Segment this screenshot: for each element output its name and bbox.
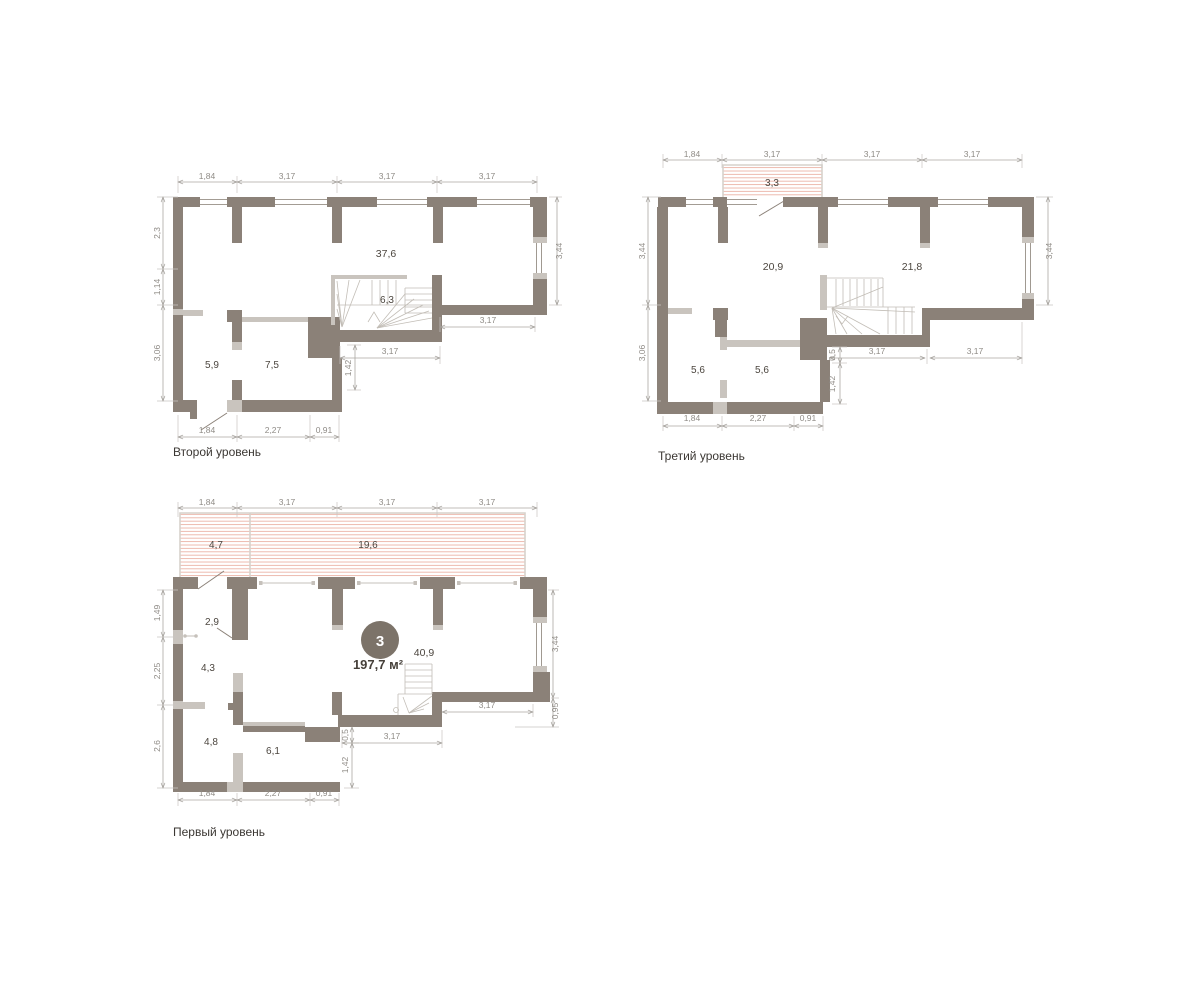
dim-label: 2,25 [152, 662, 162, 679]
dim-label: 1,84 [199, 171, 216, 181]
terrace-area: 4,7 [209, 540, 223, 551]
dim-label: 1,42 [340, 756, 350, 773]
dim-label: 2,27 [750, 413, 767, 423]
dim-label: 3,17 [279, 497, 296, 507]
dimension-lines [642, 154, 1053, 431]
window-tie [259, 581, 517, 585]
dim-label: 3,17 [964, 149, 981, 159]
walls-layer [173, 197, 547, 419]
dim-label: 3,17 [764, 149, 781, 159]
dim-label: 2,27 [265, 788, 282, 798]
room-area: 5,9 [205, 360, 219, 371]
dimension-labels: 1,84 3,17 3,17 3,17 3,44 3,06 3,44 1,84 … [637, 149, 1054, 423]
floor-plans-canvas: 1,84 3,17 3,17 3,17 2,3 1,14 3,06 3,44 1… [0, 0, 1200, 988]
dim-label: 0,5 [827, 349, 837, 361]
room-area: 21,8 [902, 261, 923, 273]
plan-title: Первый уровень [173, 825, 265, 839]
dim-label: 3,17 [479, 171, 496, 181]
room-area: 40,9 [414, 647, 435, 659]
dim-label: 3,17 [967, 346, 984, 356]
room-area-labels: 37,6 6,3 5,9 7,5 [205, 248, 396, 371]
dim-label: 0,91 [316, 425, 333, 435]
terrace-area: 19,6 [358, 540, 378, 551]
plan-title: Второй уровень [173, 445, 261, 459]
hall-door-pointer [217, 628, 232, 638]
dim-label: 1,84 [684, 413, 701, 423]
room-area: 5,6 [755, 365, 769, 376]
dim-label: 3,06 [637, 344, 647, 361]
dim-label: 1,84 [684, 149, 701, 159]
dim-label: 3,17 [382, 346, 399, 356]
dim-label: 1,42 [827, 375, 837, 392]
dim-label: 1,84 [199, 425, 216, 435]
terrace-hatch [180, 513, 525, 577]
dim-label: 3,17 [479, 497, 496, 507]
dim-label: 0,5 [340, 729, 350, 741]
dim-label: 3,44 [550, 635, 560, 652]
dim-label: 0,91 [316, 788, 333, 798]
plan-third-level: 1,84 3,17 3,17 3,17 3,44 3,06 3,44 1,84 … [637, 149, 1054, 463]
room-area: 5,6 [691, 365, 705, 376]
room-area: 4,8 [204, 737, 218, 748]
dim-label: 3,17 [379, 497, 396, 507]
dim-label: 1,84 [199, 788, 216, 798]
room-area: 4,3 [201, 663, 215, 674]
dim-label: 2,3 [152, 227, 162, 239]
dim-label: 0,95 [550, 702, 560, 719]
walls-layer [173, 577, 550, 792]
dim-label: 3,44 [637, 242, 647, 259]
walls-layer [657, 197, 1034, 414]
plan-second-level: 1,84 3,17 3,17 3,17 2,3 1,14 3,06 3,44 1… [152, 171, 564, 459]
dim-label: 3,44 [1044, 242, 1054, 259]
room-area: 37,6 [376, 248, 397, 260]
dim-label: 2,6 [152, 740, 162, 752]
dim-label: 1,14 [152, 278, 162, 295]
dim-label: 3,17 [864, 149, 881, 159]
floor-plan-sheet: 1,84 3,17 3,17 3,17 2,3 1,14 3,06 3,44 1… [0, 0, 1200, 988]
dim-label: 3,44 [554, 242, 564, 259]
room-area: 6,3 [380, 295, 394, 306]
dim-label: 3,17 [379, 171, 396, 181]
dim-label: 1,42 [343, 359, 353, 376]
plan-title: Третий уровень [658, 449, 745, 463]
dim-label: 1,84 [199, 497, 216, 507]
apartment-badge: 3 197,7 м² [353, 621, 404, 672]
dim-label: 3,06 [152, 344, 162, 361]
balcony-door-swing [759, 201, 784, 216]
door-width-marker [183, 634, 198, 638]
dim-label: 3,17 [869, 346, 886, 356]
badge-number: 3 [376, 633, 384, 650]
room-area: 2,9 [205, 617, 219, 628]
dim-label: 3,17 [384, 731, 401, 741]
dim-label: 2,27 [265, 425, 282, 435]
dim-label: 0,91 [800, 413, 817, 423]
dim-label: 3,17 [479, 700, 496, 710]
dim-label: 1,49 [152, 604, 162, 621]
staircase [827, 278, 915, 334]
balcony-area: 3,3 [765, 178, 779, 189]
dim-label: 3,17 [279, 171, 296, 181]
dim-label: 3,17 [480, 315, 497, 325]
total-area: 197,7 м² [353, 657, 404, 672]
room-area: 20,9 [763, 261, 784, 273]
room-area: 7,5 [265, 360, 279, 371]
dimension-labels: 1,84 3,17 3,17 3,17 2,3 1,14 3,06 3,44 1… [152, 171, 564, 435]
plan-first-level: 1,84 3,17 3,17 3,17 1,49 2,25 2,6 3,44 0… [152, 497, 560, 839]
room-area: 6,1 [266, 746, 280, 757]
